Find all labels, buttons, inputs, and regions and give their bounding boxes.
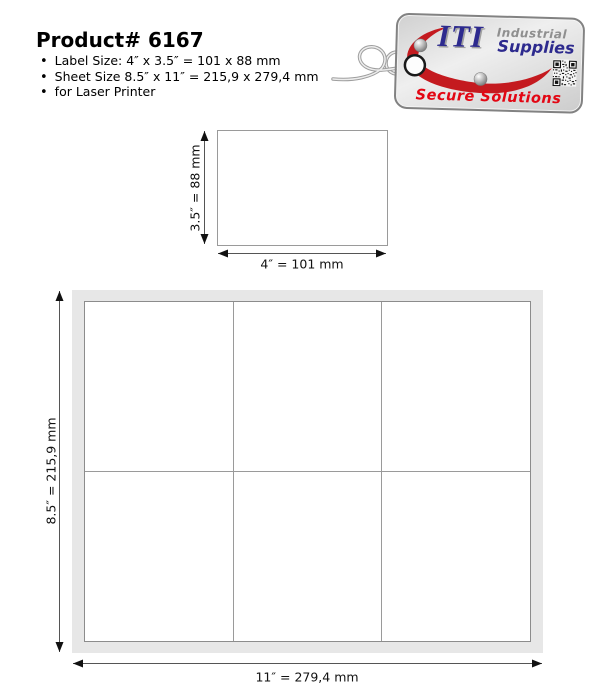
- label-cell: [85, 472, 233, 641]
- label-cell: [382, 472, 530, 641]
- label-cell: [234, 472, 382, 641]
- label-cell: [234, 302, 382, 471]
- label-width-dimension: 4″ = 101 mm: [260, 257, 343, 272]
- label-cell: [85, 302, 233, 471]
- qr-code-icon: [552, 59, 577, 87]
- brand-initials: ITI: [437, 18, 484, 55]
- chrome-ball-icon: [414, 39, 427, 52]
- label-height-dimension: 3.5″ = 88 mm: [188, 144, 203, 231]
- spec-item-label-size: Label Size: 4″ x 3.5″ = 101 x 88 mm: [40, 54, 319, 70]
- single-label-outline: [217, 130, 388, 246]
- sheet-width-dimension: 11″ = 279,4 mm: [255, 670, 358, 685]
- product-spec-page: Product# 6167 Label Size: 4″ x 3.5″ = 10…: [0, 0, 600, 700]
- chrome-ball-icon: [474, 72, 487, 85]
- spec-item-sheet-size: Sheet Size 8.5″ x 11″ = 215,9 x 279,4 mm: [40, 70, 319, 86]
- page-title: Product# 6167: [36, 28, 204, 52]
- labels-grid: [84, 301, 531, 642]
- brand-word-supplies: Supplies: [497, 37, 575, 58]
- spec-item-printer: for Laser Printer: [40, 85, 319, 101]
- sheet-height-dimension: 8.5″ = 215,9 mm: [44, 417, 59, 524]
- company-logo-tag: ITI Industrial Supplies Secure Solutions: [394, 13, 586, 114]
- label-cell: [382, 302, 530, 471]
- spec-list: Label Size: 4″ x 3.5″ = 101 x 88 mm Shee…: [40, 54, 319, 101]
